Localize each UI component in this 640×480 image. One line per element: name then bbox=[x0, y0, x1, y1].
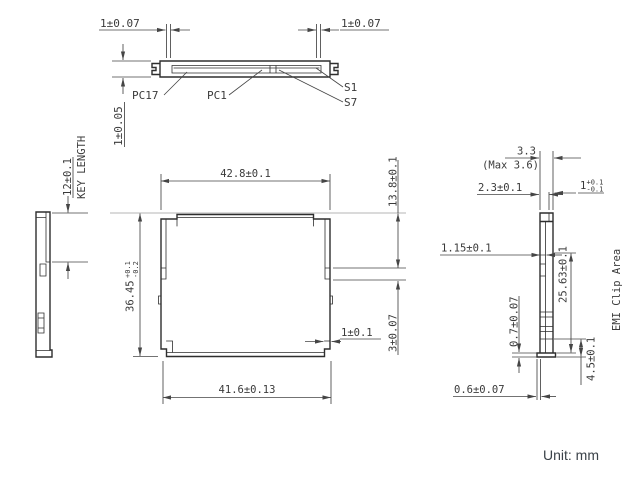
dim-corner-step-label: 1±0.1 bbox=[341, 327, 373, 339]
dim-foot-thickness-label: 0.7±0.07 bbox=[509, 296, 521, 347]
dim-key-length-label: 12±0.1 bbox=[62, 158, 74, 196]
edge-part-outline bbox=[152, 61, 338, 77]
dim-clip-tol-lower: -0.1 bbox=[587, 186, 604, 194]
dim-right-depth-label: 13.8±0.1 bbox=[388, 156, 400, 207]
dim-clip-label: 1 bbox=[580, 180, 586, 192]
left-part-detail bbox=[36, 212, 50, 351]
mechanical-drawing: 1±0.07 1±0.07 1±0.05 PC17 PC1 S1 S7 12±0… bbox=[0, 0, 640, 480]
right-part-outline bbox=[537, 213, 556, 357]
dim-lip-label: 1.15±0.1 bbox=[441, 243, 492, 255]
drawing-note: Unit: mm bbox=[543, 447, 599, 463]
side-view-left: 12±0.1 KEY LENGTH bbox=[36, 136, 88, 357]
dim-right-step-label: 3±0.07 bbox=[388, 314, 400, 352]
dim-overall-label: 3.3 bbox=[517, 146, 536, 158]
front-extension-lines bbox=[133, 160, 406, 404]
dim-bottom-span-label: 4.5±0.1 bbox=[586, 337, 598, 381]
dim-thickness-label: 1±0.05 bbox=[112, 106, 125, 146]
dim-overall-max-label: (Max 3.6) bbox=[482, 160, 539, 172]
dim-body-label: 2.3±0.1 bbox=[478, 182, 522, 194]
dim-bottom-width-label: 41.6±0.13 bbox=[219, 384, 276, 396]
side-view-right: 3.3 (Max 3.6) 2.3±0.1 1 +0.1 -0.1 1.15±0… bbox=[440, 146, 623, 401]
mechanical-drawing-canvas: 1±0.07 1±0.07 1±0.05 PC17 PC1 S1 S7 12±0… bbox=[0, 0, 640, 480]
dim-height-tol-upper: +0.1 bbox=[124, 261, 132, 278]
dim-foot-offset-label: 0.6±0.07 bbox=[454, 384, 505, 396]
edge-view: 1±0.07 1±0.07 1±0.05 PC17 PC1 S1 S7 bbox=[99, 17, 389, 147]
front-part-outline bbox=[161, 215, 330, 357]
dim-pitch-left-label: 1±0.07 bbox=[100, 17, 140, 30]
key-length-caption: KEY LENGTH bbox=[76, 136, 88, 199]
right-part-detail bbox=[540, 213, 553, 353]
dim-height-label: 36.45 bbox=[125, 280, 137, 312]
emi-clip-area-caption: EMI Clip Area bbox=[611, 249, 623, 331]
edge-connector-detail bbox=[172, 66, 321, 74]
pin-label-s1: S1 bbox=[344, 81, 357, 94]
dim-top-width-label: 42.8±0.1 bbox=[220, 168, 271, 180]
front-part-detail bbox=[159, 218, 333, 353]
dim-emi-span-label: 25.63±0.1 bbox=[558, 246, 570, 303]
left-part-outline bbox=[36, 212, 52, 357]
dim-height-label-group: 36.45 +0.1 -0.2 bbox=[124, 261, 140, 312]
dim-clip-label-group: 1 +0.1 -0.1 bbox=[580, 179, 603, 194]
dim-pitch-right-label: 1±0.07 bbox=[341, 17, 381, 30]
pin-label-s7: S7 bbox=[344, 96, 357, 109]
dim-height-tol-lower: -0.2 bbox=[132, 261, 140, 278]
front-view: 42.8±0.1 41.6±0.13 36.45 +0.1 -0.2 13.8±… bbox=[110, 156, 406, 404]
pin-label-pc1: PC1 bbox=[207, 89, 227, 102]
unit-note: Unit: mm bbox=[543, 447, 599, 463]
pin-label-pc17: PC17 bbox=[132, 89, 159, 102]
